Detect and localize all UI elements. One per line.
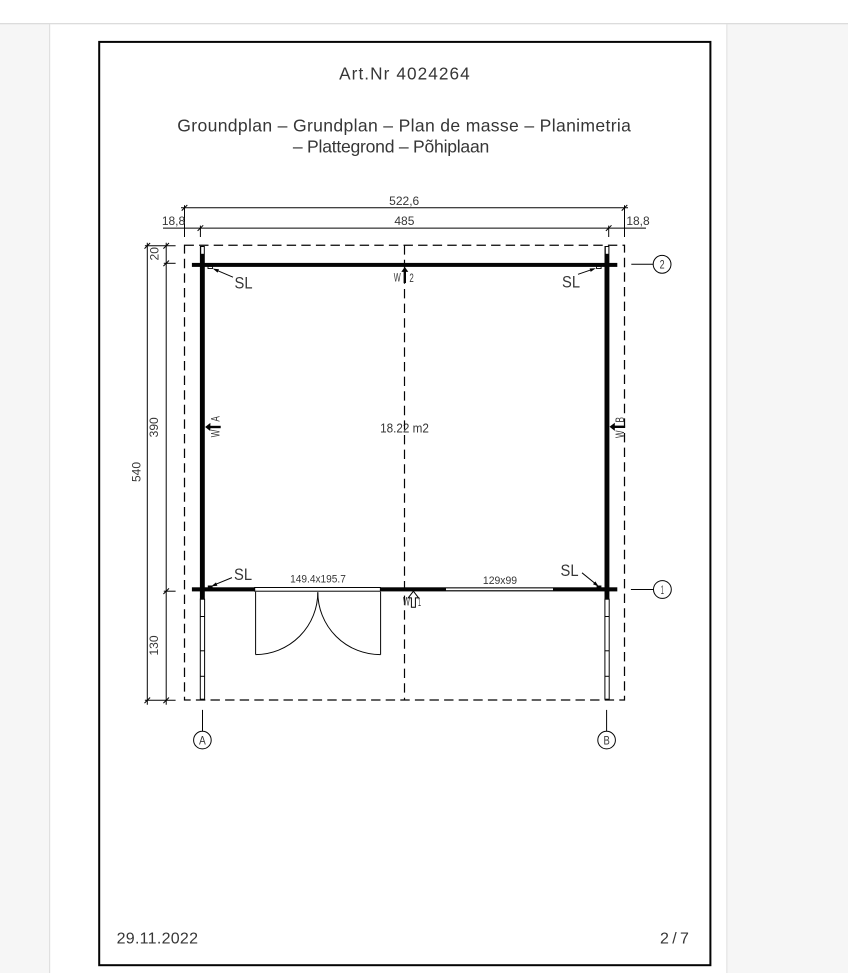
svg-text:2/7: 2/7 [660, 931, 689, 948]
svg-text:– Plattegrond – Põhiplaan: – Plattegrond – Põhiplaan [293, 136, 489, 156]
svg-text:129x99: 129x99 [483, 575, 517, 587]
svg-text:A: A [211, 416, 223, 422]
svg-text:W: W [615, 430, 627, 438]
svg-text:29.11.2022: 29.11.2022 [117, 931, 198, 948]
svg-text:SL: SL [235, 274, 253, 293]
svg-text:SL: SL [561, 561, 579, 580]
svg-text:130: 130 [147, 635, 161, 655]
svg-text:390: 390 [147, 417, 161, 437]
svg-text:W: W [403, 597, 410, 609]
svg-text:B: B [603, 735, 610, 747]
svg-text:149.4x195.7: 149.4x195.7 [290, 574, 346, 586]
svg-text:Groundplan – Grundplan – Plan: Groundplan – Grundplan – Plan de masse –… [177, 116, 631, 136]
svg-text:SL: SL [562, 273, 580, 292]
svg-text:540: 540 [129, 462, 143, 482]
svg-text:485: 485 [394, 214, 414, 228]
svg-text:20: 20 [148, 247, 162, 261]
svg-text:W: W [394, 273, 401, 285]
svg-text:1: 1 [418, 597, 421, 609]
svg-text:18,8: 18,8 [162, 214, 186, 228]
svg-text:A: A [199, 735, 206, 747]
svg-text:2: 2 [660, 258, 665, 272]
svg-text:B: B [615, 417, 627, 423]
svg-text:522,6: 522,6 [389, 194, 419, 208]
svg-text:18,8: 18,8 [626, 214, 650, 228]
svg-text:2: 2 [409, 273, 413, 285]
svg-text:W: W [211, 430, 223, 438]
svg-text:SL: SL [234, 565, 252, 584]
svg-text:1: 1 [661, 583, 664, 597]
svg-text:Art.Nr 4024264: Art.Nr 4024264 [339, 64, 470, 84]
